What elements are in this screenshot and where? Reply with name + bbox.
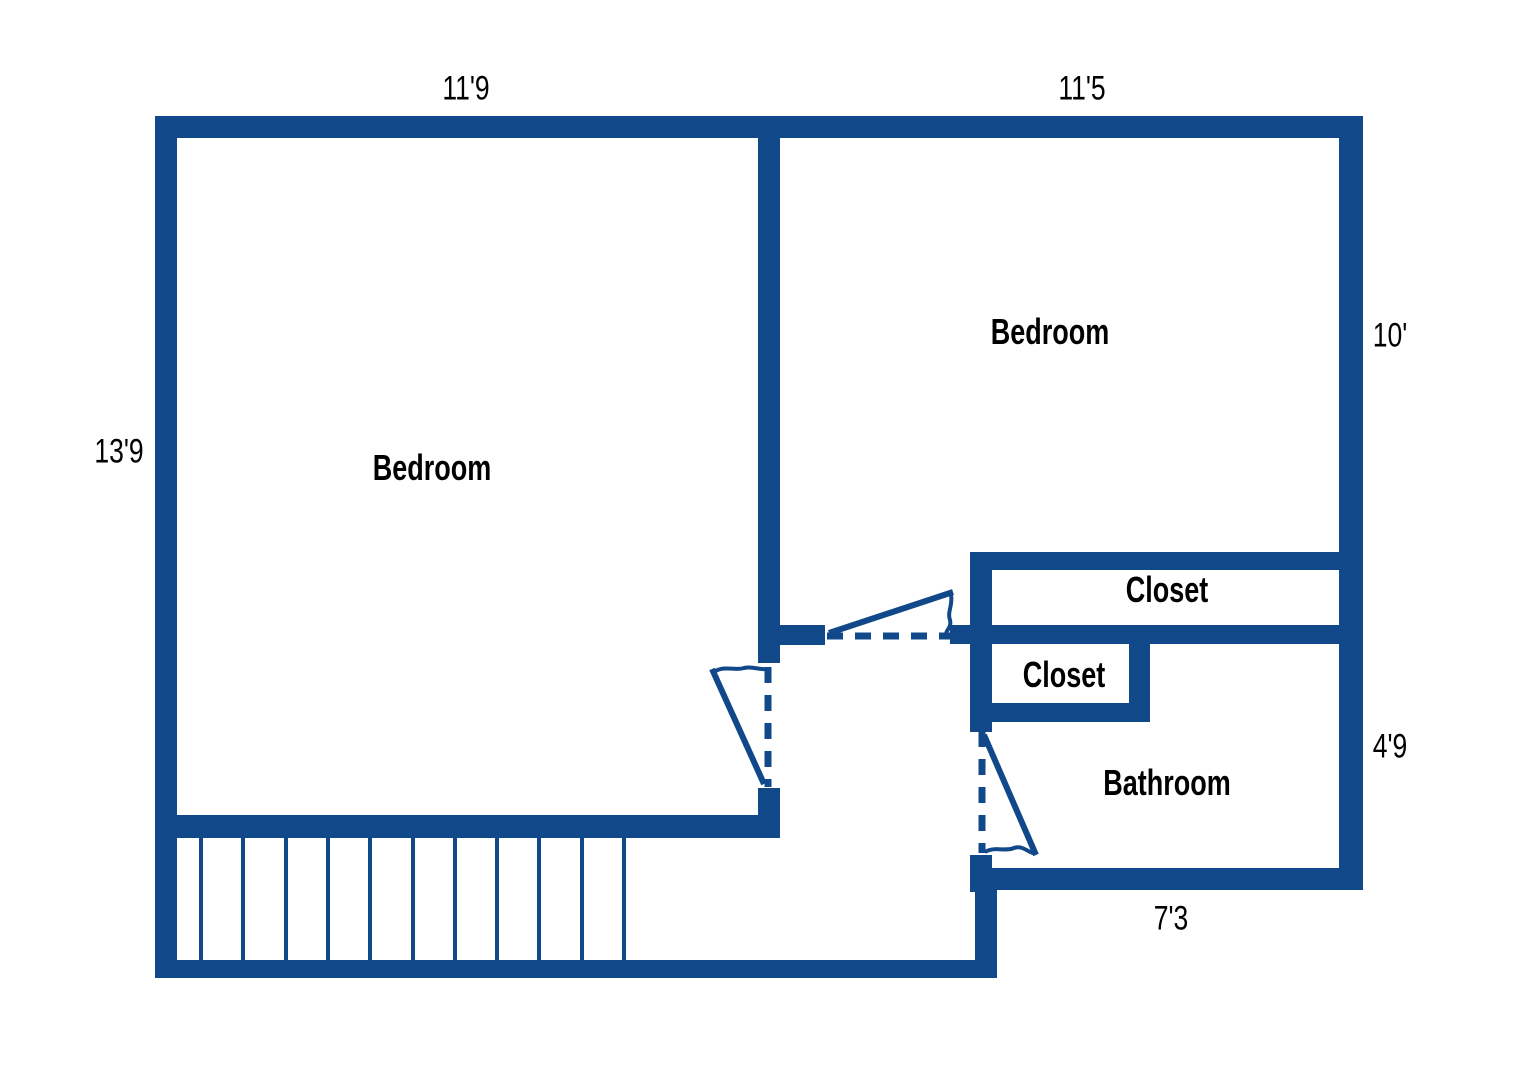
door-bedroom-left-swing-arc bbox=[714, 667, 766, 672]
door-bedroom-left-leaf bbox=[712, 669, 764, 784]
floor-plan: 11'9 11'5 10' 13'9 4'9 7'3 Bedroom Bedro… bbox=[0, 0, 1513, 1080]
dim-bedroom-left-height: 13'9 bbox=[94, 433, 143, 472]
dim-bathroom-height: 4'9 bbox=[1373, 728, 1408, 767]
door-bathroom-leaf bbox=[984, 735, 1036, 855]
label-closet-small: Closet bbox=[1023, 654, 1106, 696]
door-alcove-leaf bbox=[829, 592, 953, 633]
dim-bathroom-width: 7'3 bbox=[1154, 900, 1189, 939]
dim-bedroom-right-width: 11'5 bbox=[1058, 70, 1105, 109]
dim-bedroom-left-width: 11'9 bbox=[442, 70, 489, 109]
door-alcove bbox=[827, 592, 953, 636]
dim-bedroom-right-height: 10' bbox=[1373, 317, 1408, 356]
label-bedroom-left: Bedroom bbox=[373, 447, 492, 489]
label-closet-top: Closet bbox=[1126, 569, 1209, 611]
label-bathroom: Bathroom bbox=[1103, 762, 1231, 804]
door-bedroom-left bbox=[712, 667, 768, 787]
door-alcove-swing-arc bbox=[946, 595, 952, 636]
door-layer bbox=[0, 0, 1513, 1080]
door-bathroom-swing-arc bbox=[985, 847, 1033, 853]
door-bathroom bbox=[982, 731, 1036, 855]
label-bedroom-right: Bedroom bbox=[991, 311, 1110, 353]
